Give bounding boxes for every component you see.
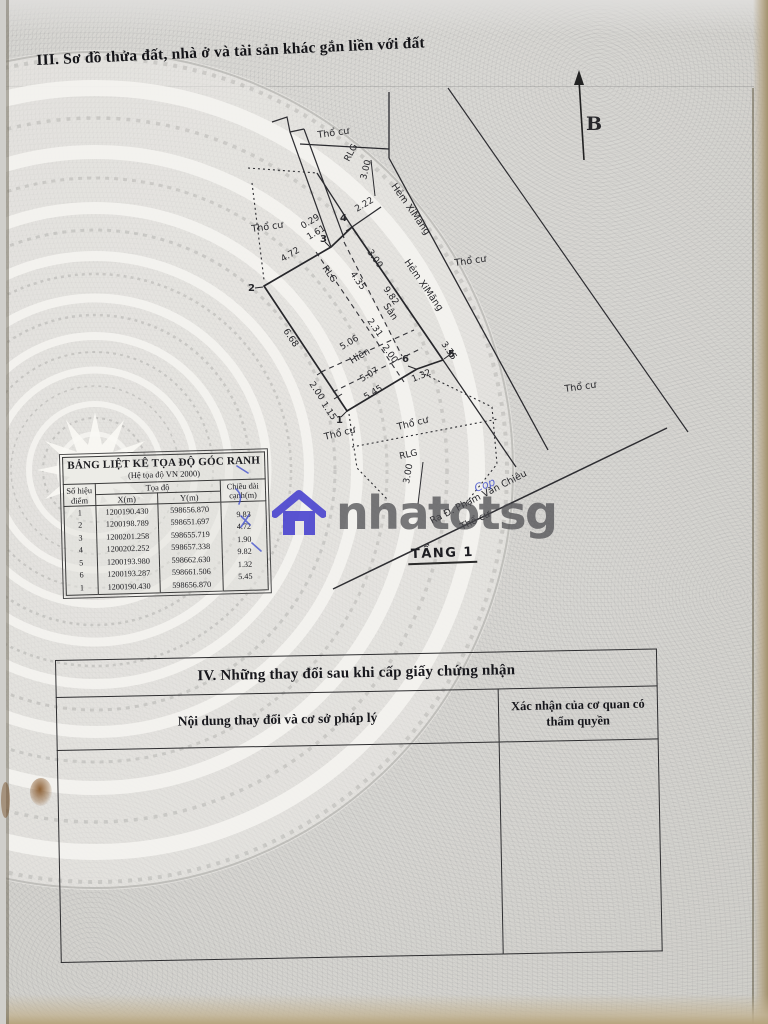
dimension-labels: 4.72 0.29 1.61 2.22 3.00 3.00 4.35 9.82 … bbox=[279, 159, 458, 485]
porch-label: Hiên bbox=[348, 346, 372, 367]
page-edge-bottom bbox=[0, 994, 768, 1024]
dim-label: 4.35 bbox=[348, 270, 368, 292]
section4-wrap: IV. Những thay đổi sau khi cấp giấy chứn… bbox=[55, 648, 663, 963]
coord-cell: 2 bbox=[64, 519, 96, 532]
rlg-label: RLG bbox=[320, 264, 339, 285]
floor-label: TẦNG 1 bbox=[408, 545, 478, 565]
land-use-label: Thổ cư bbox=[563, 380, 598, 396]
watermark-text: nhatotsg bbox=[336, 486, 556, 540]
stain-mark bbox=[30, 778, 52, 806]
page-edge-top bbox=[0, 0, 768, 34]
land-use-label: Thổ cư bbox=[322, 424, 358, 443]
rlg-label: RLG bbox=[399, 448, 419, 462]
coord-cell: 3 bbox=[65, 531, 97, 544]
land-use-label: Thổ cư bbox=[250, 220, 285, 236]
yard-label: Sân bbox=[381, 301, 400, 322]
section4-empty-left bbox=[57, 742, 503, 962]
point-label: 6 bbox=[402, 354, 409, 365]
coord-cell: 598656.870 bbox=[160, 578, 223, 593]
coord-cell: 4 bbox=[65, 544, 97, 557]
north-label: B bbox=[586, 113, 602, 135]
edge-stain-mark bbox=[1, 782, 10, 818]
coord-cell: 1 bbox=[64, 506, 96, 520]
col-header-length: Chiều dài cạnh(m) bbox=[220, 479, 266, 502]
point-labels: 1 2 3 4 5 6 bbox=[248, 213, 455, 426]
page-edge-line bbox=[752, 88, 754, 1024]
north-arrow: B bbox=[574, 70, 602, 160]
coord-cell bbox=[223, 582, 269, 596]
dim-label: 2.00 bbox=[380, 343, 400, 365]
land-use-label: Thổ cư bbox=[316, 126, 351, 142]
rlg-label: RLG bbox=[343, 143, 360, 164]
dim-label: 2.00 bbox=[307, 380, 327, 402]
point-label: 4 bbox=[340, 213, 347, 224]
house-icon bbox=[272, 489, 326, 537]
dim-label: 5.06 bbox=[338, 334, 361, 353]
point-label: 2 bbox=[248, 283, 255, 294]
alley-label: Hẻm XiMăng bbox=[402, 257, 446, 313]
dim-label: 3.00 bbox=[359, 159, 374, 181]
section4-empty-right bbox=[499, 739, 662, 954]
feature-labels: RLG RLG RLG Hẻm XiMăng Hẻm XiMăng Sân Hi… bbox=[320, 143, 529, 527]
section4-col-left: Nội dung thay đổi và cơ sở pháp lý bbox=[56, 689, 499, 750]
page-fold-line bbox=[6, 0, 9, 1024]
scanned-certificate-page: III. Sơ đồ thửa đất, nhà ở và tài sản kh… bbox=[0, 0, 768, 1024]
coord-cell: 1200190.430 bbox=[98, 579, 161, 594]
dim-label: 2.22 bbox=[353, 196, 375, 215]
section4-empty-row bbox=[57, 739, 662, 962]
col-header-point: Số hiệu điểm bbox=[63, 484, 95, 507]
coord-cell: 5 bbox=[65, 556, 97, 569]
dim-label: 5.45 bbox=[362, 384, 384, 403]
coordinate-table: BẢNG LIỆT KÊ TỌA ĐỘ GÓC RANH (Hệ tọa độ … bbox=[62, 451, 269, 595]
coord-cell: 9.83 bbox=[221, 507, 267, 521]
coordinate-table-body: 11200190.430598656.8709.8321200198.78959… bbox=[64, 501, 268, 595]
dim-label: 3.00 bbox=[365, 248, 385, 270]
section4-col-right: Xác nhận của cơ quan có thẩm quyền bbox=[498, 686, 658, 742]
dim-label: 5.07 bbox=[358, 366, 380, 385]
dim-label: 4.72 bbox=[279, 246, 301, 265]
land-use-labels: Thổ cư Thổ cư Thổ cư Thổ cư Thổ cư Thổ c… bbox=[250, 126, 598, 534]
alley-label: Hẻm XiMăng bbox=[389, 181, 433, 237]
site-watermark: nhatotsg bbox=[272, 486, 556, 540]
page-edge-right bbox=[753, 0, 768, 1024]
dim-label: 6.68 bbox=[281, 327, 301, 349]
section4-table: IV. Những thay đổi sau khi cấp giấy chứn… bbox=[55, 648, 663, 963]
coord-cell: 6 bbox=[66, 569, 98, 582]
land-use-label: Thổ cư bbox=[453, 254, 488, 270]
coord-cell: 1 bbox=[66, 581, 98, 595]
land-use-label: Thổ cư bbox=[395, 414, 431, 433]
coordinate-table-wrap: BẢNG LIỆT KÊ TỌA ĐỘ GÓC RANH (Hệ tọa độ … bbox=[62, 451, 269, 595]
dim-label: 3.00 bbox=[402, 463, 415, 485]
